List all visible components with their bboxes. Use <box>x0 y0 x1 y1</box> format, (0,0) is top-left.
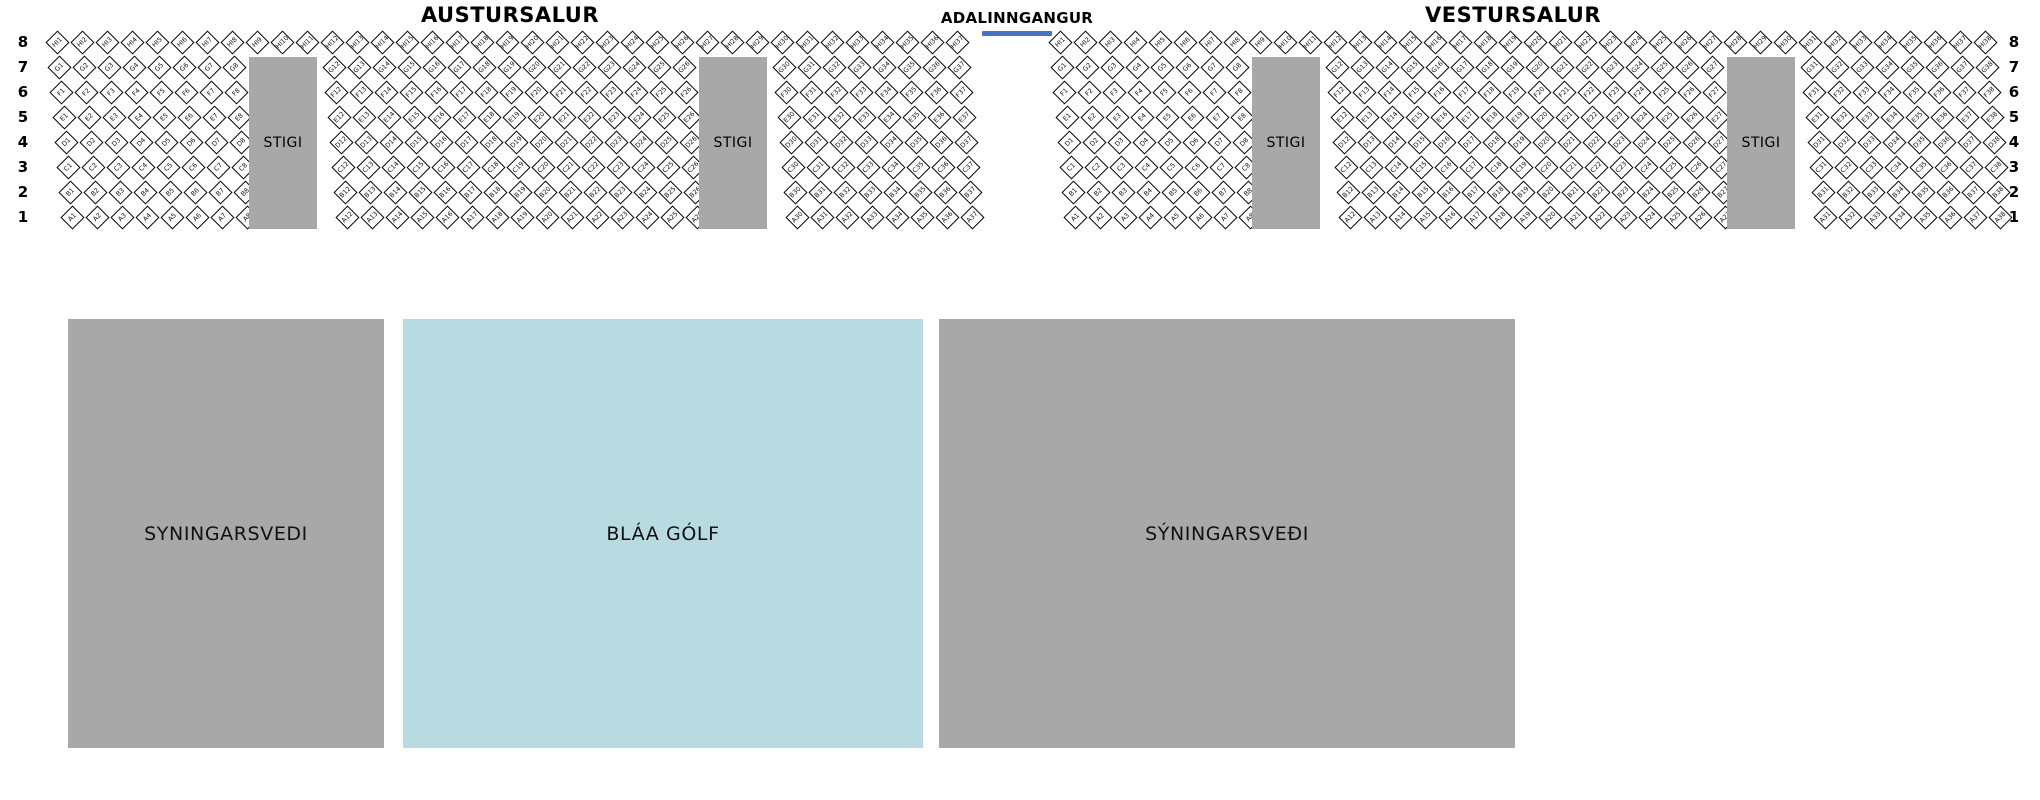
seat[interactable]: D16 <box>1432 130 1456 154</box>
seat[interactable]: B21 <box>559 180 583 204</box>
seat[interactable]: HI29 <box>745 30 769 54</box>
seat[interactable]: B17 <box>459 180 483 204</box>
seat[interactable]: F27 <box>1703 80 1727 104</box>
seat[interactable]: D2 <box>79 130 103 154</box>
seat[interactable]: A36 <box>1939 205 1963 229</box>
seat[interactable]: D20 <box>529 130 553 154</box>
seat[interactable]: D1 <box>1057 130 1081 154</box>
seat[interactable]: HI37 <box>1948 30 1972 54</box>
seat[interactable]: A14 <box>1389 205 1413 229</box>
seat[interactable]: D4 <box>129 130 153 154</box>
seat[interactable]: D1 <box>54 130 78 154</box>
seat[interactable]: D35 <box>1907 130 1931 154</box>
seat[interactable]: C13 <box>356 155 380 179</box>
seat[interactable]: HI18 <box>470 30 494 54</box>
seat[interactable]: HI11 <box>1298 30 1322 54</box>
seat[interactable]: A33 <box>861 205 885 229</box>
seat[interactable]: C36 <box>931 155 955 179</box>
seat[interactable]: A15 <box>1414 205 1438 229</box>
seat[interactable]: HI32 <box>820 30 844 54</box>
seat[interactable]: G19 <box>1501 55 1525 79</box>
seat[interactable]: D22 <box>1582 130 1606 154</box>
seat[interactable]: E32 <box>1830 105 1854 129</box>
seat[interactable]: A23 <box>1614 205 1638 229</box>
seat[interactable]: HI24 <box>1623 30 1647 54</box>
seat[interactable]: D2 <box>1082 130 1106 154</box>
seat[interactable]: A35 <box>1914 205 1938 229</box>
seat[interactable]: D21 <box>1557 130 1581 154</box>
seat[interactable]: B6 <box>184 180 208 204</box>
seat[interactable]: D34 <box>879 130 903 154</box>
seat[interactable]: HI22 <box>570 30 594 54</box>
seat[interactable]: A15 <box>411 205 435 229</box>
seat[interactable]: G15 <box>398 55 422 79</box>
seat[interactable]: A34 <box>886 205 910 229</box>
seat[interactable]: D3 <box>104 130 128 154</box>
seat[interactable]: F24 <box>625 80 649 104</box>
seat[interactable]: C23 <box>1609 155 1633 179</box>
seat[interactable]: E4 <box>127 105 151 129</box>
seat[interactable]: B6 <box>1187 180 1211 204</box>
seat[interactable]: B33 <box>859 180 883 204</box>
seat[interactable]: HI9 <box>245 30 269 54</box>
seat[interactable]: A12 <box>1339 205 1363 229</box>
seat[interactable]: D12 <box>329 130 353 154</box>
seat[interactable]: A21 <box>561 205 585 229</box>
seat[interactable]: D22 <box>579 130 603 154</box>
seat[interactable]: A17 <box>1464 205 1488 229</box>
seat[interactable]: HI2 <box>70 30 94 54</box>
seat[interactable]: C34 <box>1884 155 1908 179</box>
seat[interactable]: F36 <box>1928 80 1952 104</box>
seat[interactable]: A1 <box>1064 205 1088 229</box>
seat[interactable]: B36 <box>1937 180 1961 204</box>
seat[interactable]: HI4 <box>1123 30 1147 54</box>
seat[interactable]: B20 <box>534 180 558 204</box>
seat[interactable]: G27 <box>1701 55 1725 79</box>
seat[interactable]: B13 <box>359 180 383 204</box>
seat[interactable]: F17 <box>1453 80 1477 104</box>
seat[interactable]: C21 <box>1559 155 1583 179</box>
seat[interactable]: D32 <box>829 130 853 154</box>
seat[interactable]: E17 <box>452 105 476 129</box>
seat[interactable]: A37 <box>1964 205 1988 229</box>
seat[interactable]: D17 <box>454 130 478 154</box>
seat[interactable]: HI27 <box>1698 30 1722 54</box>
seat[interactable]: G14 <box>1376 55 1400 79</box>
seat[interactable]: C22 <box>581 155 605 179</box>
seat[interactable]: A1 <box>61 205 85 229</box>
seat[interactable]: G8 <box>223 55 247 79</box>
seat[interactable]: F26 <box>675 80 699 104</box>
seat[interactable]: A36 <box>936 205 960 229</box>
seat[interactable]: HI22 <box>1573 30 1597 54</box>
seat[interactable]: C32 <box>831 155 855 179</box>
seat[interactable]: A23 <box>611 205 635 229</box>
seat[interactable]: A16 <box>1439 205 1463 229</box>
seat[interactable]: A5 <box>1164 205 1188 229</box>
seat[interactable]: E14 <box>1380 105 1404 129</box>
seat[interactable]: HI25 <box>645 30 669 54</box>
seat[interactable]: G17 <box>1451 55 1475 79</box>
seat[interactable]: HI6 <box>1173 30 1197 54</box>
seat[interactable]: D18 <box>479 130 503 154</box>
seat[interactable]: HI13 <box>345 30 369 54</box>
seat[interactable]: E6 <box>177 105 201 129</box>
seat[interactable]: E37 <box>1955 105 1979 129</box>
seat[interactable]: G22 <box>573 55 597 79</box>
seat[interactable]: E31 <box>802 105 826 129</box>
seat[interactable]: HI5 <box>145 30 169 54</box>
seat[interactable]: HI8 <box>220 30 244 54</box>
seat[interactable]: B16 <box>434 180 458 204</box>
seat[interactable]: D19 <box>1507 130 1531 154</box>
seat[interactable]: B12 <box>1337 180 1361 204</box>
seat[interactable]: F7 <box>1203 80 1227 104</box>
seat[interactable]: C14 <box>381 155 405 179</box>
seat[interactable]: E8 <box>227 105 251 129</box>
seat[interactable]: HI10 <box>1273 30 1297 54</box>
seat[interactable]: E5 <box>152 105 176 129</box>
seat[interactable]: A7 <box>1214 205 1238 229</box>
seat[interactable]: F3 <box>1103 80 1127 104</box>
seat[interactable]: E26 <box>677 105 701 129</box>
seat[interactable]: E1 <box>1055 105 1079 129</box>
seat[interactable]: HI12 <box>1323 30 1347 54</box>
seat[interactable]: HI35 <box>1898 30 1922 54</box>
seat[interactable]: B2 <box>1087 180 1111 204</box>
seat[interactable]: A4 <box>136 205 160 229</box>
seat[interactable]: G20 <box>1526 55 1550 79</box>
seat[interactable]: D20 <box>1532 130 1556 154</box>
seat[interactable]: HI32 <box>1823 30 1847 54</box>
seat[interactable]: HI10 <box>270 30 294 54</box>
seat[interactable]: G31 <box>1801 55 1825 79</box>
seat[interactable]: D12 <box>1332 130 1356 154</box>
seat[interactable]: C36 <box>1934 155 1958 179</box>
seat[interactable]: C21 <box>556 155 580 179</box>
seat[interactable]: C25 <box>1659 155 1683 179</box>
seat[interactable]: B34 <box>1887 180 1911 204</box>
seat[interactable]: HI11 <box>295 30 319 54</box>
seat[interactable]: D18 <box>1482 130 1506 154</box>
seat[interactable]: G36 <box>1926 55 1950 79</box>
seat[interactable]: C24 <box>1634 155 1658 179</box>
seat[interactable]: D17 <box>1457 130 1481 154</box>
seat[interactable]: G4 <box>123 55 147 79</box>
seat[interactable]: C7 <box>206 155 230 179</box>
seat[interactable]: D26 <box>1682 130 1706 154</box>
seat[interactable]: A20 <box>536 205 560 229</box>
seat[interactable]: G12 <box>1326 55 1350 79</box>
seat[interactable]: F4 <box>125 80 149 104</box>
seat[interactable]: HI33 <box>845 30 869 54</box>
seat[interactable]: E25 <box>1655 105 1679 129</box>
seat[interactable]: HI34 <box>1873 30 1897 54</box>
seat[interactable]: C37 <box>956 155 980 179</box>
seat[interactable]: HI24 <box>620 30 644 54</box>
seat[interactable]: G32 <box>1826 55 1850 79</box>
seat[interactable]: B16 <box>1437 180 1461 204</box>
seat[interactable]: D33 <box>1857 130 1881 154</box>
seat[interactable]: C22 <box>1584 155 1608 179</box>
seat[interactable]: G14 <box>373 55 397 79</box>
seat[interactable]: HI8 <box>1223 30 1247 54</box>
seat[interactable]: E33 <box>1855 105 1879 129</box>
seat[interactable]: E30 <box>777 105 801 129</box>
seat[interactable]: E15 <box>402 105 426 129</box>
seat[interactable]: C7 <box>1209 155 1233 179</box>
seat[interactable]: C18 <box>1484 155 1508 179</box>
seat[interactable]: B18 <box>1487 180 1511 204</box>
seat[interactable]: A4 <box>1139 205 1163 229</box>
seat[interactable]: HI15 <box>1398 30 1422 54</box>
seat[interactable]: A22 <box>1589 205 1613 229</box>
seat[interactable]: A21 <box>1564 205 1588 229</box>
seat[interactable]: E34 <box>877 105 901 129</box>
seat[interactable]: G26 <box>673 55 697 79</box>
seat[interactable]: C13 <box>1359 155 1383 179</box>
seat[interactable]: C31 <box>806 155 830 179</box>
seat[interactable]: B1 <box>1062 180 1086 204</box>
seat[interactable]: G35 <box>1901 55 1925 79</box>
seat[interactable]: A20 <box>1539 205 1563 229</box>
seat[interactable]: B30 <box>784 180 808 204</box>
seat[interactable]: F33 <box>1853 80 1877 104</box>
seat[interactable]: F7 <box>200 80 224 104</box>
seat[interactable]: F22 <box>575 80 599 104</box>
seat[interactable]: HI28 <box>720 30 744 54</box>
seat[interactable]: E15 <box>1405 105 1429 129</box>
seat[interactable]: G8 <box>1226 55 1250 79</box>
seat[interactable]: B3 <box>109 180 133 204</box>
seat[interactable]: HI15 <box>395 30 419 54</box>
seat[interactable]: HI14 <box>1373 30 1397 54</box>
seat[interactable]: HI7 <box>195 30 219 54</box>
seat[interactable]: F6 <box>175 80 199 104</box>
seat[interactable]: B5 <box>1162 180 1186 204</box>
seat[interactable]: C37 <box>1959 155 1983 179</box>
seat[interactable]: G38 <box>1976 55 2000 79</box>
seat[interactable]: C35 <box>1909 155 1933 179</box>
seat[interactable]: HI28 <box>1723 30 1747 54</box>
seat[interactable]: F21 <box>1553 80 1577 104</box>
seat[interactable]: C31 <box>1809 155 1833 179</box>
seat[interactable]: B24 <box>1637 180 1661 204</box>
seat[interactable]: E23 <box>602 105 626 129</box>
seat[interactable]: E18 <box>477 105 501 129</box>
seat[interactable]: A14 <box>386 205 410 229</box>
seat[interactable]: B23 <box>1612 180 1636 204</box>
seat[interactable]: B33 <box>1862 180 1886 204</box>
seat[interactable]: F33 <box>850 80 874 104</box>
seat[interactable]: A16 <box>436 205 460 229</box>
seat[interactable]: G34 <box>873 55 897 79</box>
seat[interactable]: C2 <box>81 155 105 179</box>
seat[interactable]: G5 <box>1151 55 1175 79</box>
seat[interactable]: HI36 <box>1923 30 1947 54</box>
seat[interactable]: B1 <box>59 180 83 204</box>
seat[interactable]: A18 <box>1489 205 1513 229</box>
seat[interactable]: C12 <box>1334 155 1358 179</box>
seat[interactable]: B2 <box>84 180 108 204</box>
seat[interactable]: D5 <box>1157 130 1181 154</box>
seat[interactable]: F12 <box>325 80 349 104</box>
seat[interactable]: E6 <box>1180 105 1204 129</box>
seat[interactable]: HI26 <box>670 30 694 54</box>
seat[interactable]: D6 <box>1182 130 1206 154</box>
seat[interactable]: HI30 <box>770 30 794 54</box>
seat[interactable]: G21 <box>548 55 572 79</box>
seat[interactable]: G7 <box>1201 55 1225 79</box>
seat[interactable]: A7 <box>211 205 235 229</box>
seat[interactable]: E21 <box>552 105 576 129</box>
seat[interactable]: D37 <box>954 130 978 154</box>
seat[interactable]: B32 <box>834 180 858 204</box>
seat[interactable]: F15 <box>1403 80 1427 104</box>
seat[interactable]: F26 <box>1678 80 1702 104</box>
seat[interactable]: C6 <box>181 155 205 179</box>
seat[interactable]: HI37 <box>945 30 969 54</box>
seat[interactable]: HI25 <box>1648 30 1672 54</box>
seat[interactable]: F20 <box>525 80 549 104</box>
seat[interactable]: A13 <box>1364 205 1388 229</box>
seat[interactable]: A25 <box>661 205 685 229</box>
seat[interactable]: F23 <box>1603 80 1627 104</box>
seat[interactable]: A5 <box>161 205 185 229</box>
seat[interactable]: HI31 <box>1798 30 1822 54</box>
seat[interactable]: A37 <box>961 205 985 229</box>
seat[interactable]: F15 <box>400 80 424 104</box>
seat[interactable]: E36 <box>927 105 951 129</box>
seat[interactable]: B25 <box>659 180 683 204</box>
seat[interactable]: E26 <box>1680 105 1704 129</box>
seat[interactable]: HI9 <box>1248 30 1272 54</box>
seat[interactable]: E19 <box>502 105 526 129</box>
seat[interactable]: C3 <box>1109 155 1133 179</box>
seat[interactable]: D3 <box>1107 130 1131 154</box>
seat[interactable]: C33 <box>1859 155 1883 179</box>
seat[interactable]: HI21 <box>1548 30 1572 54</box>
seat[interactable]: F36 <box>925 80 949 104</box>
seat[interactable]: D14 <box>1382 130 1406 154</box>
seat[interactable]: F19 <box>500 80 524 104</box>
seat[interactable]: F22 <box>1578 80 1602 104</box>
seat[interactable]: B3 <box>1112 180 1136 204</box>
seat[interactable]: HI3 <box>1098 30 1122 54</box>
seat[interactable]: G4 <box>1126 55 1150 79</box>
seat[interactable]: A2 <box>1089 205 1113 229</box>
seat[interactable]: C17 <box>456 155 480 179</box>
seat[interactable]: C5 <box>1159 155 1183 179</box>
seat[interactable]: C32 <box>1834 155 1858 179</box>
seat[interactable]: G33 <box>848 55 872 79</box>
seat[interactable]: HI3 <box>95 30 119 54</box>
seat[interactable]: B21 <box>1562 180 1586 204</box>
seat[interactable]: D7 <box>204 130 228 154</box>
seat[interactable]: A19 <box>1514 205 1538 229</box>
seat[interactable]: E12 <box>327 105 351 129</box>
seat[interactable]: B15 <box>409 180 433 204</box>
seat[interactable]: HI20 <box>520 30 544 54</box>
seat[interactable]: B13 <box>1362 180 1386 204</box>
seat[interactable]: C4 <box>1134 155 1158 179</box>
seat[interactable]: C12 <box>331 155 355 179</box>
seat[interactable]: E20 <box>527 105 551 129</box>
seat[interactable]: E27 <box>1705 105 1729 129</box>
seat[interactable]: G26 <box>1676 55 1700 79</box>
seat[interactable]: E4 <box>1130 105 1154 129</box>
seat[interactable]: B5 <box>159 180 183 204</box>
seat[interactable]: HI16 <box>420 30 444 54</box>
seat[interactable]: HI31 <box>795 30 819 54</box>
seat[interactable]: E36 <box>1930 105 1954 129</box>
seat[interactable]: F5 <box>150 80 174 104</box>
seat[interactable]: B35 <box>1912 180 1936 204</box>
seat[interactable]: C20 <box>531 155 555 179</box>
seat[interactable]: G5 <box>148 55 172 79</box>
seat[interactable]: F30 <box>775 80 799 104</box>
seat[interactable]: G16 <box>1426 55 1450 79</box>
seat[interactable]: B37 <box>1962 180 1986 204</box>
seat[interactable]: F20 <box>1528 80 1552 104</box>
seat[interactable]: C25 <box>656 155 680 179</box>
seat[interactable]: HI33 <box>1848 30 1872 54</box>
seat[interactable]: A19 <box>511 205 535 229</box>
seat[interactable]: G23 <box>598 55 622 79</box>
seat[interactable]: F13 <box>1353 80 1377 104</box>
seat[interactable]: C35 <box>906 155 930 179</box>
seat[interactable]: B23 <box>609 180 633 204</box>
seat[interactable]: B32 <box>1837 180 1861 204</box>
seat[interactable]: E16 <box>1430 105 1454 129</box>
seat[interactable]: F1 <box>50 80 74 104</box>
seat[interactable]: G37 <box>1951 55 1975 79</box>
seat[interactable]: E31 <box>1805 105 1829 129</box>
seat[interactable]: HI36 <box>920 30 944 54</box>
seat[interactable]: C6 <box>1184 155 1208 179</box>
seat[interactable]: G13 <box>1351 55 1375 79</box>
seat[interactable]: C26 <box>1684 155 1708 179</box>
seat[interactable]: HI18 <box>1473 30 1497 54</box>
seat[interactable]: E33 <box>852 105 876 129</box>
seat[interactable]: D19 <box>504 130 528 154</box>
seat[interactable]: G31 <box>798 55 822 79</box>
seat[interactable]: F38 <box>1978 80 2002 104</box>
seat[interactable]: G12 <box>323 55 347 79</box>
seat[interactable]: D31 <box>804 130 828 154</box>
seat[interactable]: C5 <box>156 155 180 179</box>
seat[interactable]: F37 <box>1953 80 1977 104</box>
seat[interactable]: E13 <box>352 105 376 129</box>
seat[interactable]: E32 <box>827 105 851 129</box>
seat[interactable]: G34 <box>1876 55 1900 79</box>
seat[interactable]: E2 <box>1080 105 1104 129</box>
seat[interactable]: E23 <box>1605 105 1629 129</box>
seat[interactable]: C20 <box>1534 155 1558 179</box>
seat[interactable]: B20 <box>1537 180 1561 204</box>
seat[interactable]: F5 <box>1153 80 1177 104</box>
seat[interactable]: HI30 <box>1773 30 1797 54</box>
seat[interactable]: F14 <box>1378 80 1402 104</box>
seat[interactable]: G7 <box>198 55 222 79</box>
seat[interactable]: D15 <box>1407 130 1431 154</box>
seat[interactable]: A24 <box>636 205 660 229</box>
seat[interactable]: F32 <box>1828 80 1852 104</box>
seat[interactable]: G2 <box>1076 55 1100 79</box>
seat[interactable]: E34 <box>1880 105 1904 129</box>
seat[interactable]: B12 <box>334 180 358 204</box>
